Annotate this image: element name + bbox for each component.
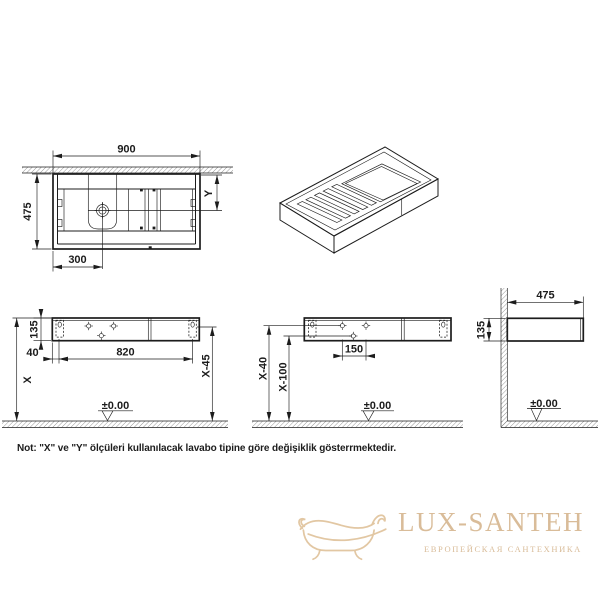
- dim-150: 150: [334, 340, 375, 361]
- dim-x-40-label: X-40: [258, 357, 270, 380]
- cabinet-outline-top: [53, 174, 200, 249]
- datum-side: ±0.00: [527, 398, 561, 421]
- front-view-a: 135 40 820 X X-45 ±0.00: [2, 310, 228, 428]
- dim-150-label: 150: [345, 344, 363, 356]
- top-view: 900 475 300 Y: [22, 144, 233, 272]
- dim-y-label: Y: [203, 189, 215, 197]
- dim-820: 820: [59, 339, 193, 364]
- datum-a-label: ±0.00: [102, 400, 129, 412]
- dim-135-a: 135: [29, 310, 52, 350]
- dim-475-side-label: 475: [536, 290, 554, 302]
- dim-475-top: 475: [22, 174, 52, 249]
- dim-x-45-label: X-45: [201, 354, 213, 377]
- datum-b: ±0.00: [361, 400, 394, 421]
- dim-135-a-label: 135: [29, 320, 41, 338]
- cabinet-internals-top: [58, 174, 196, 249]
- dim-300-label: 300: [68, 254, 86, 266]
- cabinet-front-a: [52, 318, 199, 341]
- front-view-b: 150 X-40 X-100 ±0.00: [252, 318, 463, 428]
- floor-hatch-b: [252, 421, 463, 428]
- dim-900-label: 900: [117, 144, 135, 156]
- dim-40: 40: [26, 339, 67, 364]
- brand-tagline: ЕВРОПЕЙСКАЯ САНТЕХНИКА: [424, 544, 582, 554]
- dim-135-side-label: 135: [476, 321, 488, 339]
- dim-820-label: 820: [116, 347, 134, 359]
- side-view: 475 135 ±0.00: [476, 288, 599, 428]
- brand-name: LUX-SANTEH: [398, 509, 584, 536]
- datum-a: ±0.00: [98, 400, 133, 421]
- mount-brackets-a: [56, 320, 196, 337]
- dim-300: 300: [53, 251, 103, 272]
- cabinet-side: [507, 318, 583, 341]
- mount-brackets-b: [309, 320, 447, 337]
- slats: [297, 184, 376, 222]
- wall-hatch: [22, 167, 233, 173]
- technical-drawing-page: 900 475 300 Y: [0, 0, 600, 600]
- dim-y: Y: [201, 175, 222, 211]
- dim-x-100-label: X-100: [278, 362, 290, 391]
- wall-hatch-side: [501, 288, 507, 428]
- note-text: Not: "X" ve "Y" ölçüleri kullanılacak la…: [17, 443, 396, 454]
- dim-x-label: X: [22, 376, 34, 384]
- dim-475-side: 475: [507, 290, 583, 318]
- logo: LUX-SANTEH ЕВРОПЕЙСКАЯ САНТЕХНИКА: [294, 500, 594, 575]
- floor-hatch-side: [501, 421, 598, 428]
- floor-hatch-a: [2, 421, 228, 428]
- cabinet-front-b: [304, 318, 451, 341]
- bathtub-icon: [296, 504, 396, 566]
- basin-recess: [342, 164, 421, 202]
- drain-symbol: [88, 202, 222, 269]
- dim-475-top-label: 475: [22, 202, 34, 220]
- datum-b-label: ±0.00: [364, 400, 391, 412]
- dim-x-100: X-100: [278, 336, 353, 421]
- isometric-view: [280, 147, 438, 253]
- dim-40-label: 40: [26, 347, 38, 359]
